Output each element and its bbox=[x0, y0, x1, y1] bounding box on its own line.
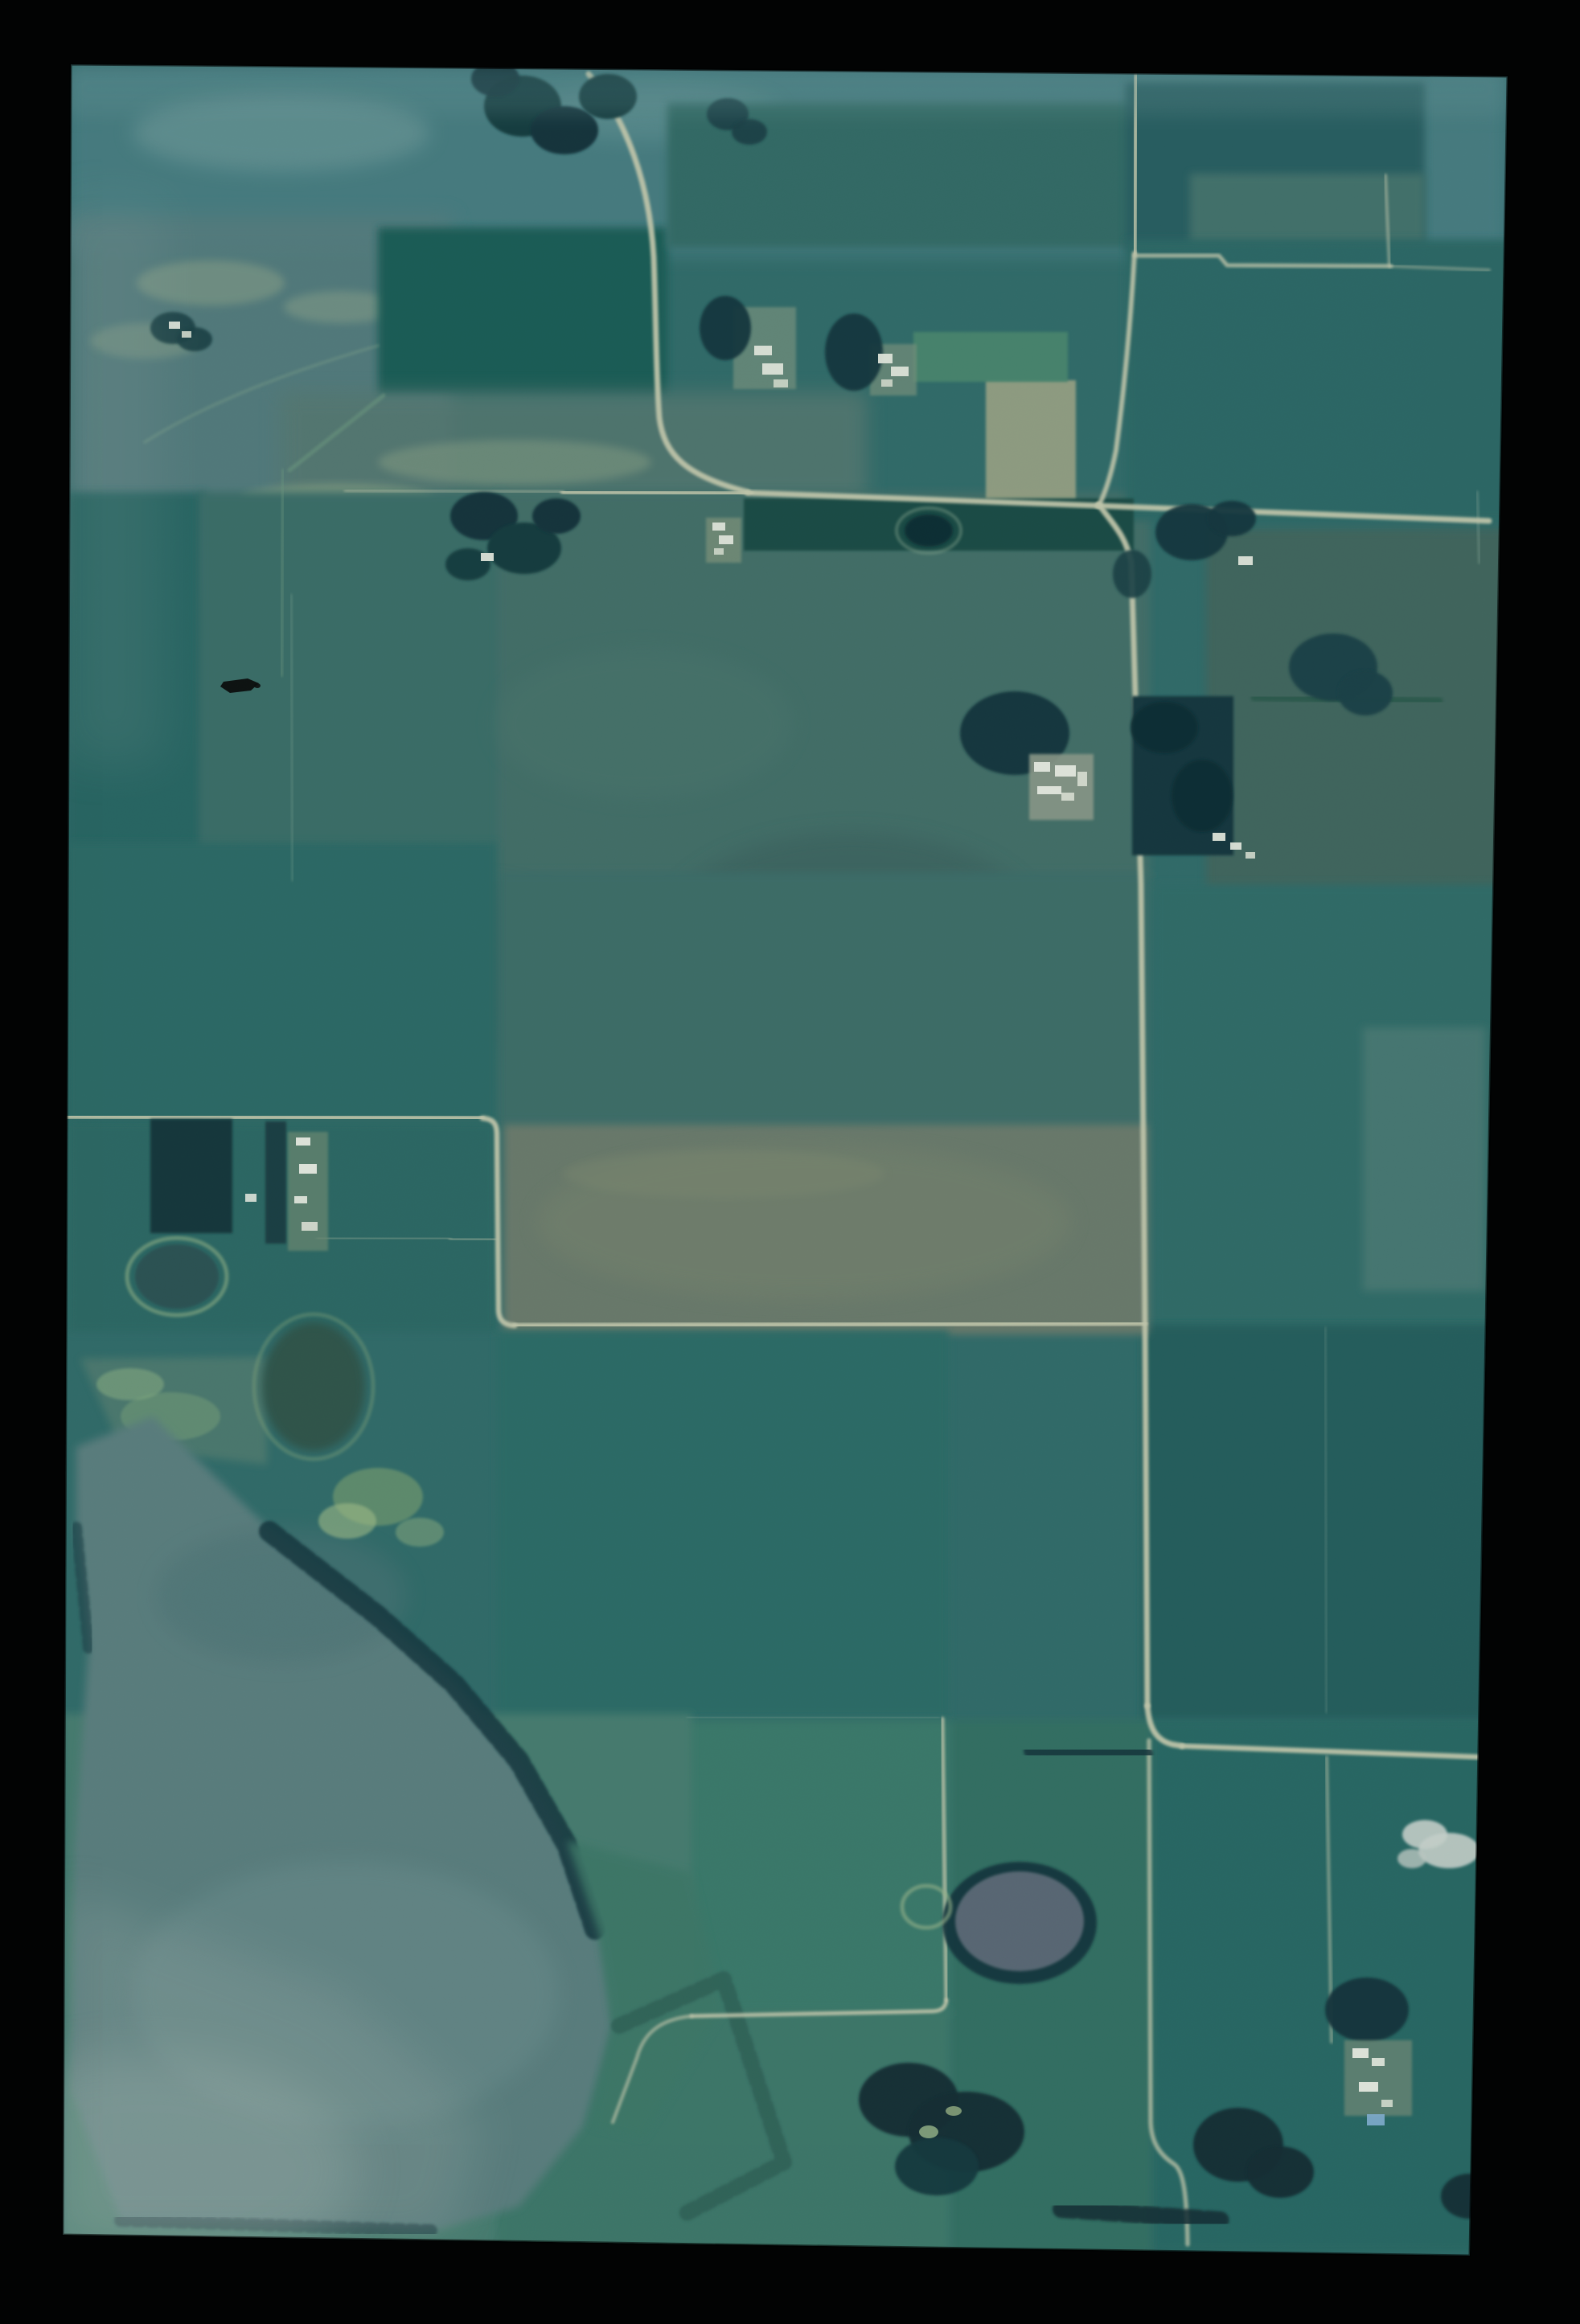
aerial-photo-frame bbox=[0, 0, 1580, 2324]
aerial-photo bbox=[0, 0, 1580, 2324]
photo-content bbox=[0, 0, 1580, 2324]
film-grain-overlay bbox=[0, 0, 1580, 2324]
film-slide-mount bbox=[0, 0, 1580, 2324]
